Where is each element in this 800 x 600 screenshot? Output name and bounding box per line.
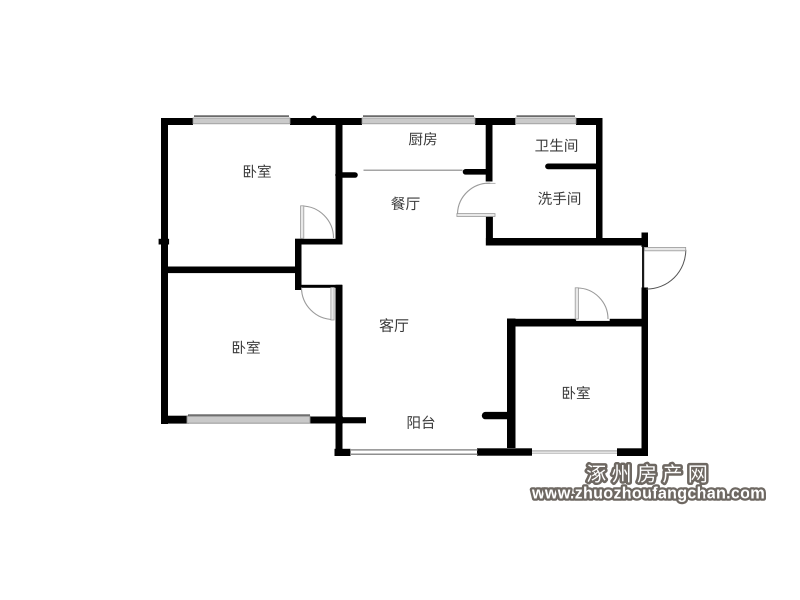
svg-text:www.zhuozhoufangchan.com: www.zhuozhoufangchan.com [531, 484, 765, 502]
